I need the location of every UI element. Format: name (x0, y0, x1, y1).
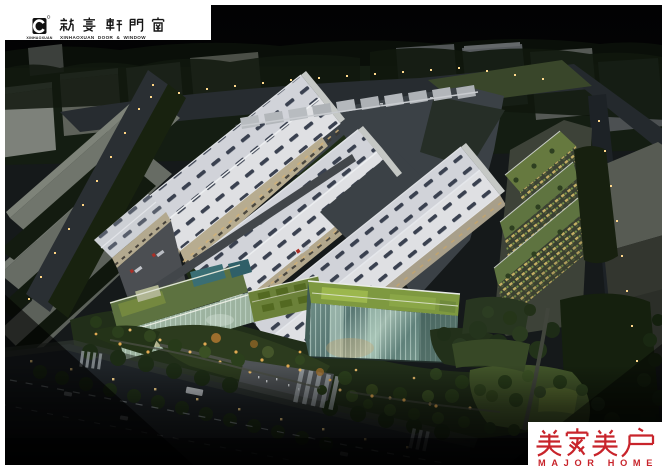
svg-text:XINHAOXUAN: XINHAOXUAN (26, 36, 52, 40)
svg-text:XINHAOXUAN DOOR & WINDOW: XINHAOXUAN DOOR & WINDOW (60, 35, 146, 40)
svg-text:MAJOR HOME: MAJOR HOME (538, 458, 657, 468)
